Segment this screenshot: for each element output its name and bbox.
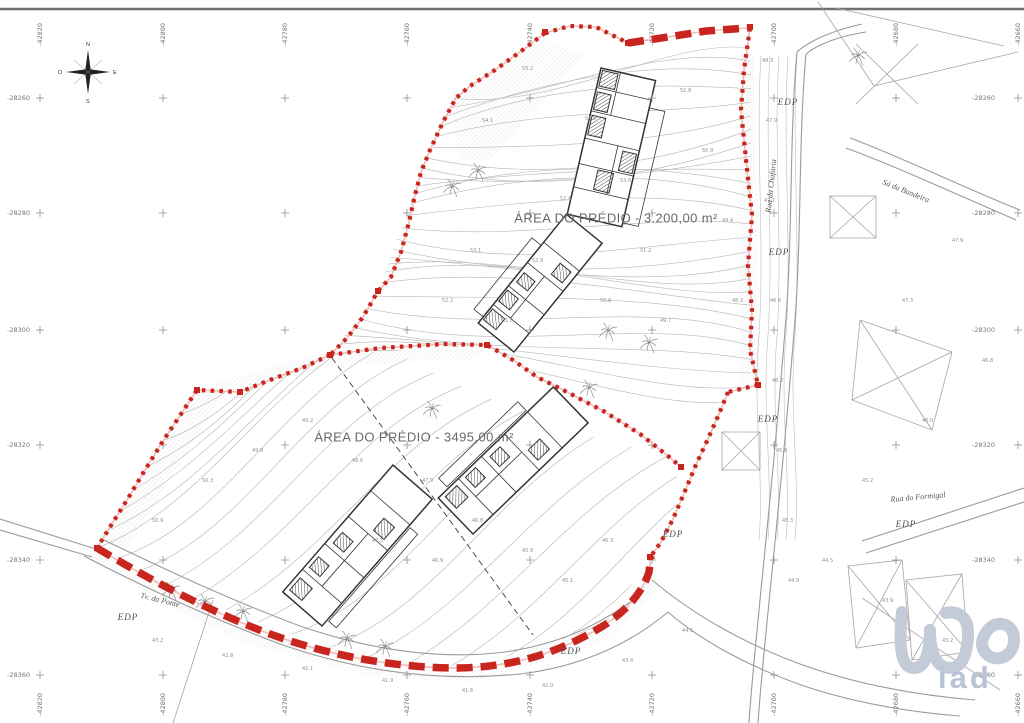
property-boundaries (97, 26, 758, 668)
grid-cross (36, 209, 44, 217)
compass-rose: N S E O (58, 42, 117, 105)
building-top (567, 68, 671, 230)
tree-symbol (580, 380, 598, 398)
spot-elevation: 45.8 (776, 448, 787, 454)
grid-cross (648, 209, 656, 217)
spot-elevation: 43.2 (942, 638, 953, 644)
boundary-corner-marker (327, 352, 333, 358)
spot-elevation: 52.9 (532, 258, 543, 264)
boundary-corner-marker (625, 40, 631, 46)
spot-elevation: 49.4 (722, 218, 733, 224)
grid-cross (403, 94, 411, 102)
grid-cross (36, 441, 44, 449)
spot-elevation: 41.9 (382, 678, 393, 684)
spot-elevation: 48.6 (352, 458, 363, 464)
tree-symbol (599, 323, 617, 341)
grid-cross (770, 209, 778, 217)
grid-cross (403, 556, 411, 564)
tree-symbol (443, 179, 461, 197)
grid-cross (403, 326, 411, 334)
iad-logo-text: iad (938, 660, 1024, 696)
spot-elevation: 50.9 (702, 148, 713, 154)
compass-east-label: E (113, 70, 117, 76)
grid-column-label-top: -42800 (159, 23, 167, 46)
grid-column-label-bottom: -42660 (1014, 693, 1022, 716)
spot-elevation: 43.4 (622, 658, 633, 664)
grid-cross (1014, 209, 1022, 217)
grid-column-label-top: -42660 (1014, 23, 1022, 46)
boundary-corner-marker (542, 29, 548, 35)
boundary-corner-marker (375, 288, 381, 294)
spot-elevation: 52.2 (442, 298, 453, 304)
grid-cross (403, 441, 411, 449)
grid-column-label-top: -42820 (36, 23, 44, 46)
spot-elevation: 42.0 (542, 683, 553, 689)
grid-row-label-left: -28280 (7, 209, 30, 217)
grid-row-label-right: -28280 (972, 209, 995, 217)
grid-cross (892, 209, 900, 217)
cadastral-map-drawing: -42820-42820-42800-42800-42780-42780-427… (0, 0, 1024, 723)
boundary-corner-marker (484, 342, 490, 348)
contour-lines-lower (97, 158, 901, 668)
spot-elevation: 45.2 (862, 478, 873, 484)
spot-elevation: 47.5 (372, 538, 383, 544)
boundary-corner-marker (747, 24, 753, 30)
grid-row-label-left: -28360 (7, 671, 30, 679)
grid-cross (1014, 441, 1022, 449)
boundary-corner-marker (647, 554, 653, 560)
grid-column-label-bottom: -42700 (770, 693, 778, 716)
grid-cross (1014, 94, 1022, 102)
site-plan-canvas: -42820-42820-42800-42800-42780-42780-427… (0, 0, 1024, 723)
spot-elevation: 55.2 (522, 66, 533, 72)
tree-symbol (849, 48, 867, 66)
spot-elevation: 43.9 (882, 598, 893, 604)
grid-row-label-right: -28300 (972, 326, 995, 334)
grid-cross (1014, 556, 1022, 564)
grid-cross (36, 326, 44, 334)
boundary-corner-marker (678, 464, 684, 470)
spot-elevation: 53.1 (470, 248, 481, 254)
building-lower-right (429, 377, 589, 534)
grid-cross (770, 94, 778, 102)
spot-elevation: 46.0 (922, 418, 933, 424)
grid-cross (159, 671, 167, 679)
spot-elevation: 54.1 (482, 118, 493, 124)
spot-elevation: 47.1 (764, 198, 775, 204)
spot-elevation: 44.5 (822, 558, 833, 564)
grid-column-label-bottom: -42740 (526, 693, 534, 716)
grid-cross (892, 441, 900, 449)
tree-symbol (423, 401, 441, 419)
grid-cross (648, 326, 656, 334)
grid-column-label-top: -42680 (892, 23, 900, 46)
grid-cross (281, 556, 289, 564)
grid-cross (892, 671, 900, 679)
spot-elevation: 50.9 (152, 518, 163, 524)
grid-row-label-right: -28320 (972, 441, 995, 449)
spot-elevation: 47.3 (902, 298, 913, 304)
grid-cross (281, 441, 289, 449)
grid-cross (892, 94, 900, 102)
grid-column-label-bottom: -42680 (892, 693, 900, 716)
grid-cross (1014, 326, 1022, 334)
spot-elevation: 48.3 (762, 58, 773, 64)
spot-elevation: 45.1 (562, 578, 573, 584)
spot-elevation: 46.9 (432, 558, 443, 564)
spot-elevation: 49.7 (660, 318, 671, 324)
grid-column-label-bottom: -42760 (403, 693, 411, 716)
grid-cross (159, 326, 167, 334)
spot-elevation: 49.2 (302, 418, 313, 424)
grid-column-label-top: -42700 (770, 23, 778, 46)
grid-cross (281, 671, 289, 679)
boundary-east-lower (651, 392, 728, 556)
spot-elevation: 47.9 (422, 478, 433, 484)
spot-elevation: 50.3 (202, 478, 213, 484)
grid-cross (281, 326, 289, 334)
grid-column-label-top: -42780 (281, 23, 289, 46)
spot-elevation: 42.1 (302, 666, 313, 672)
compass-west-label: O (58, 70, 63, 76)
spot-elevation: 52.8 (680, 88, 691, 94)
boundary-corner-marker (237, 389, 243, 395)
grid-cross (159, 94, 167, 102)
spot-elevation: 46.8 (982, 358, 993, 364)
grid-column-label-bottom: -42780 (281, 693, 289, 716)
spot-elevation: 46.6 (770, 298, 781, 304)
grid-row-label-left: -28300 (7, 326, 30, 334)
grid-cross (526, 209, 534, 217)
spot-elevation: 54.6 (585, 116, 596, 122)
spot-elevation: 43.2 (152, 638, 163, 644)
spot-elevation: 45.9 (522, 548, 533, 554)
compass-south-label: S (86, 99, 90, 105)
spot-elevation: 45.3 (782, 518, 793, 524)
grid-cross (770, 326, 778, 334)
boundary-corner-marker (194, 387, 200, 393)
grid-cross (648, 671, 656, 679)
spot-elevation: 51.6 (502, 318, 513, 324)
boundary-north (545, 26, 628, 43)
grid-cross (36, 556, 44, 564)
grid-cross (281, 94, 289, 102)
spot-elevation: 46.8 (472, 518, 483, 524)
spot-elevation: 47.9 (952, 238, 963, 244)
grid-column-label-bottom: -42820 (36, 693, 44, 716)
grid-row-label-right: -28260 (972, 94, 995, 102)
grid-cross (892, 556, 900, 564)
grid-cross (770, 671, 778, 679)
grid-row-label-left: -28320 (7, 441, 30, 449)
spot-elevation: 44.1 (682, 628, 693, 634)
grid-row-label-left: -28340 (7, 556, 30, 564)
spot-elevation: 51.2 (640, 248, 651, 254)
building-middle (469, 207, 602, 352)
spot-elevation: 53.6 (620, 178, 631, 184)
grid-cross (281, 209, 289, 217)
boundary-corner-marker (94, 545, 100, 551)
grid-cross (36, 671, 44, 679)
grid-cross (36, 94, 44, 102)
grid-column-label-top: -42760 (403, 23, 411, 46)
grid-column-label-bottom: -42720 (648, 693, 656, 716)
grid-row-label-right: -28340 (972, 556, 995, 564)
grid-cross (159, 556, 167, 564)
spot-elevation: 42.8 (222, 653, 233, 659)
spot-elevation: 47.9 (766, 118, 777, 124)
spot-elevation: 50.8 (600, 298, 611, 304)
spot-elevation: 49.8 (252, 448, 263, 454)
spot-elevation: 48.2 (732, 298, 743, 304)
grid-column-label-bottom: -42800 (159, 693, 167, 716)
spot-elevation: 46.3 (602, 538, 613, 544)
compass-north-label: N (86, 42, 90, 48)
spot-elevation: 44.9 (788, 578, 799, 584)
boundary-corner-marker (755, 382, 761, 388)
spot-elevation: 46.2 (772, 378, 783, 384)
boundary-halo (728, 385, 758, 392)
grid-cross (892, 326, 900, 334)
grid-cross (770, 556, 778, 564)
grid-cross (159, 209, 167, 217)
spot-elevation: 41.6 (462, 688, 473, 694)
spot-elevation: 52.4 (560, 196, 571, 202)
building-lower-left (283, 465, 442, 634)
grid-row-label-left: -28260 (7, 94, 30, 102)
